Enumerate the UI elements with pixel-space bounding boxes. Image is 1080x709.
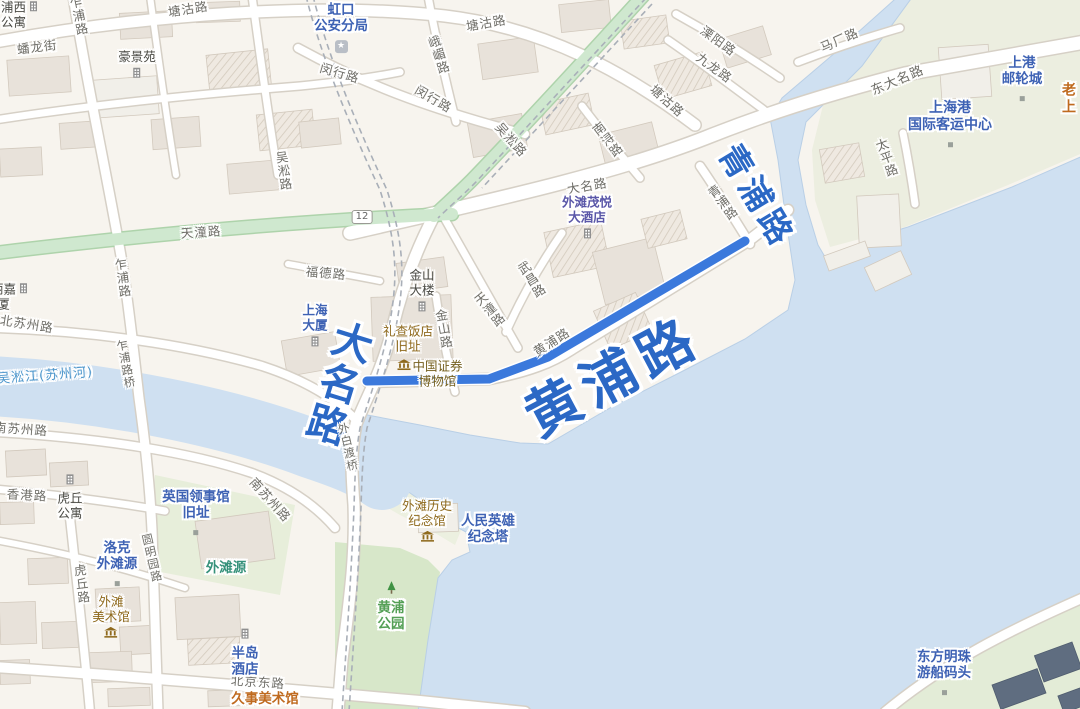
poi-label-line: 外滩 <box>92 595 130 610</box>
poi-label-line: 丽嘉 <box>0 282 16 297</box>
bund-map[interactable]: 大名路 黄浦路 青浦路 吴淞江(苏州河) 12 塘沽路乍浦路蟠龙街闵行路闵行路峨… <box>0 0 1080 709</box>
building-icon <box>309 335 320 351</box>
poi-label-line: 公安分局 <box>314 19 368 35</box>
poi-label-line: 中国证券 <box>412 359 462 374</box>
poi-label: 礼查饭店旧址 <box>383 324 433 354</box>
poi-label-line: 旧址 <box>162 506 230 522</box>
poi-label-line: 虹口 <box>314 3 368 19</box>
poi-label-line: 国际客运中心 <box>908 117 992 134</box>
poi-label-line: 公寓 <box>1 15 26 30</box>
poi-label-line: 上海港 <box>908 100 992 117</box>
poi-label: 豪景苑 <box>118 50 156 83</box>
poi-label: 东方明珠游船码头 <box>917 650 971 700</box>
poi-label-line: 金山 <box>409 268 434 283</box>
poi-label: 久事美术馆 <box>231 692 299 708</box>
poi-label-line: 人民英雄 <box>461 514 515 530</box>
poi-label: 中国证券博物馆 <box>397 359 462 389</box>
poi-label-line: 豪景苑 <box>118 50 156 65</box>
poi-label: 丽嘉厦 <box>0 282 29 312</box>
poi-label-line: 虎丘 <box>57 491 82 506</box>
dot-icon <box>948 135 953 152</box>
poi-label-line: 游船码头 <box>917 666 971 682</box>
building-icon <box>28 0 39 16</box>
poi-label: 外滩源 <box>206 561 247 577</box>
poi-label-line: 浦西 <box>1 0 26 15</box>
tree-icon <box>386 581 396 599</box>
poi-label: 半岛酒店 <box>232 628 259 679</box>
poi-label-line: 上港 <box>1002 56 1043 72</box>
building-icon <box>131 67 142 83</box>
poi-label: 人民英雄纪念塔 <box>461 514 515 546</box>
poi-label: 黄浦公园 <box>378 581 405 633</box>
poi-label: 浦西公寓 <box>1 0 39 30</box>
poi-label-line: 公园 <box>378 617 405 633</box>
building-icon <box>240 628 251 645</box>
poi-label: 洛克外滩源 <box>97 541 138 591</box>
poi-label-line: 东方明珠 <box>917 650 971 666</box>
poi-label: 上海港国际客运中心 <box>908 100 992 152</box>
poi-label: 老上 <box>1062 82 1076 115</box>
building-icon <box>64 473 75 489</box>
poi-label-line: 外滩源 <box>206 561 247 577</box>
museum-icon <box>420 530 433 545</box>
poi-label-line: 外滩历史 <box>402 499 452 514</box>
poi-label: 虎丘公寓 <box>57 473 82 520</box>
poi-label-line: 邮轮城 <box>1002 72 1043 88</box>
poi-label-line: 洛克 <box>97 541 138 557</box>
poi-label-line: 纪念塔 <box>461 530 515 546</box>
poi-label-line: 公寓 <box>57 506 82 521</box>
poi-label-line: 酒店 <box>232 662 259 678</box>
route-12-badge: 12 <box>352 210 373 224</box>
museum-icon <box>104 626 117 641</box>
poi-label-line: 英国领事馆 <box>162 490 230 506</box>
building-icon <box>416 300 427 316</box>
museum-icon <box>397 359 410 374</box>
building-icon <box>18 282 29 298</box>
poi-label-line: 外滩茂悦 <box>562 195 612 210</box>
poi-label: 上港邮轮城 <box>1002 56 1043 106</box>
poi-label-line: 博物馆 <box>412 374 462 389</box>
poi-label-line: 厦 <box>0 297 16 312</box>
poi-label-line: 久事美术馆 <box>231 692 299 708</box>
police-badge-icon: ★ <box>335 37 348 53</box>
poi-label-line: 旧址 <box>383 339 433 354</box>
poi-label-line: 大酒店 <box>562 210 612 225</box>
dot-icon <box>1020 90 1025 106</box>
poi-label-line: 大楼 <box>409 283 434 298</box>
poi-label-line: 上海 <box>302 303 327 318</box>
poi-label-line: 老上 <box>1062 82 1076 115</box>
poi-label: 外滩美术馆 <box>92 595 130 641</box>
poi-label: 英国领事馆旧址 <box>162 490 230 540</box>
dot-icon <box>115 575 120 591</box>
poi-label-line: 大厦 <box>302 318 327 333</box>
poi-label-line: 美术馆 <box>92 610 130 625</box>
poi-label-line: 纪念馆 <box>402 514 452 529</box>
building-icon <box>581 227 592 243</box>
dot-icon <box>942 684 947 700</box>
dot-icon <box>194 524 199 540</box>
poi-label-line: 黄浦 <box>378 601 405 617</box>
poi-label: 外滩历史纪念馆 <box>402 499 452 545</box>
poi-label: 虹口公安分局★ <box>314 3 368 53</box>
poi-label-line: 半岛 <box>232 647 259 663</box>
poi-label: 金山大楼 <box>409 268 434 315</box>
poi-label: 外滩茂悦大酒店 <box>562 195 612 242</box>
poi-label-line: 外滩源 <box>97 557 138 573</box>
poi-label: 上海大厦 <box>302 303 327 350</box>
poi-label-line: 礼查饭店 <box>383 324 433 339</box>
